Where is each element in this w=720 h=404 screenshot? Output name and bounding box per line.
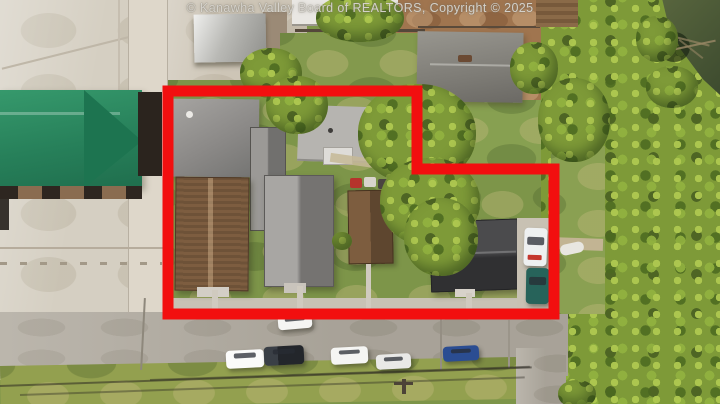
parked-car-white-driveway [523, 228, 547, 267]
satellite-dish [186, 111, 193, 118]
parked-suv-white [331, 346, 369, 365]
front-walkway [297, 286, 303, 310]
truck-top-right [458, 55, 472, 62]
building-eaves-windows [0, 186, 142, 199]
yard-clutter-red [350, 178, 362, 188]
porch-roof [455, 289, 475, 297]
watermark-text: © Kanawha Valley Board of REALTORS, Copy… [0, 1, 720, 15]
front-walkway [366, 264, 371, 310]
roof-vent-mark [328, 128, 333, 133]
grass-strip-right [551, 146, 605, 314]
pavement-marks [0, 262, 162, 265]
street-joint [508, 320, 510, 368]
fence-line [418, 26, 540, 28]
sidewalk [166, 298, 558, 312]
front-walkway [466, 293, 472, 310]
parked-suv-white [226, 349, 265, 369]
parked-pickup-dark [264, 345, 305, 366]
tree-canopy [266, 76, 328, 134]
street-joint [440, 316, 442, 370]
yard-clutter-white [364, 177, 376, 187]
car-on-street-white [277, 314, 312, 331]
tree-by-pond [646, 66, 698, 108]
building-side-shadow [138, 92, 162, 176]
utility-pole-crossarm [394, 382, 413, 385]
bush [332, 232, 352, 250]
house-roof-brown-left-ridge [208, 178, 213, 290]
front-walkway [212, 290, 218, 310]
parked-car-teal-driveway [526, 268, 550, 304]
house-roof-gray-middle [264, 175, 334, 287]
house-roof-gray-hip [171, 99, 260, 178]
tree-bottom-right [558, 380, 596, 404]
tree-canopy [404, 198, 478, 276]
tree-by-pond [636, 16, 678, 62]
parked-sedan-blue [443, 345, 480, 362]
tree-canopy [538, 78, 610, 162]
dark-object-lot-edge [0, 196, 9, 230]
tree-canopy [510, 42, 558, 94]
pavement-joint [0, 247, 166, 249]
parked-sedan-silver [376, 353, 412, 370]
aerial-photo: © Kanawha Valley Board of REALTORS, Copy… [0, 0, 720, 404]
